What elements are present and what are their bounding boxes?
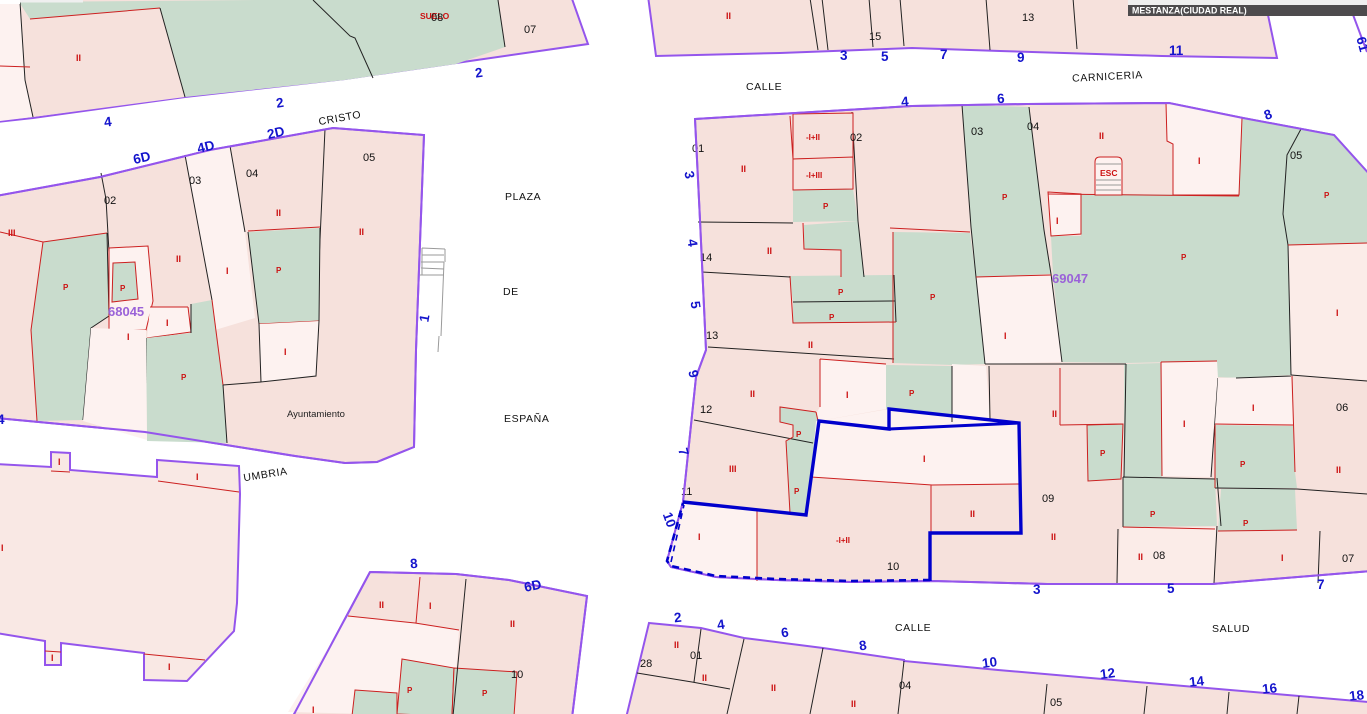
svg-text:3: 3: [1033, 582, 1041, 597]
svg-text:03: 03: [189, 175, 201, 187]
svg-text:II: II: [808, 340, 813, 350]
svg-text:P: P: [1150, 510, 1156, 519]
svg-text:P: P: [909, 389, 915, 398]
svg-text:Ayuntamiento: Ayuntamiento: [287, 409, 345, 420]
svg-text:I: I: [168, 662, 171, 672]
svg-text:05: 05: [363, 152, 375, 164]
svg-text:P: P: [794, 487, 800, 496]
svg-text:P: P: [120, 284, 126, 293]
svg-text:01: 01: [690, 650, 702, 662]
svg-text:P: P: [1002, 193, 1008, 202]
svg-text:I: I: [166, 318, 169, 328]
svg-text:06: 06: [1336, 402, 1348, 414]
svg-text:03: 03: [971, 126, 983, 138]
svg-text:28: 28: [640, 658, 652, 670]
svg-text:P: P: [930, 293, 936, 302]
svg-text:10: 10: [887, 561, 899, 573]
svg-text:I: I: [1252, 403, 1255, 413]
svg-text:II: II: [1336, 465, 1341, 475]
svg-text:II: II: [741, 164, 746, 174]
svg-text:4: 4: [0, 412, 5, 427]
svg-text:3: 3: [840, 48, 848, 63]
svg-text:16: 16: [1261, 680, 1278, 697]
svg-text:P: P: [63, 283, 69, 292]
svg-text:69047: 69047: [1052, 271, 1088, 286]
svg-text:III: III: [729, 464, 737, 474]
svg-text:14: 14: [1188, 673, 1205, 690]
svg-text:II: II: [970, 509, 975, 519]
svg-text:II: II: [674, 640, 679, 650]
svg-text:II: II: [1052, 409, 1057, 419]
svg-text:ESC: ESC: [1100, 168, 1117, 178]
svg-text:P: P: [181, 373, 187, 382]
svg-text:10: 10: [511, 669, 523, 681]
svg-text:II: II: [76, 53, 81, 63]
svg-text:08: 08: [1153, 550, 1165, 562]
svg-text:P: P: [482, 689, 488, 698]
svg-text:P: P: [1240, 460, 1246, 469]
svg-text:-I+II: -I+II: [836, 536, 850, 545]
svg-text:13: 13: [1022, 12, 1034, 24]
svg-text:02: 02: [850, 132, 862, 144]
svg-text:II: II: [1099, 131, 1104, 141]
svg-text:II: II: [851, 699, 856, 709]
svg-text:ESPAÑA: ESPAÑA: [504, 412, 549, 425]
svg-text:01: 01: [692, 143, 704, 155]
svg-text:I: I: [1056, 216, 1059, 226]
svg-text:11: 11: [1169, 43, 1184, 58]
svg-text:CALLE: CALLE: [746, 81, 782, 93]
svg-text:P: P: [1243, 519, 1249, 528]
svg-text:05: 05: [1290, 150, 1302, 162]
svg-text:5: 5: [881, 49, 889, 64]
svg-text:5: 5: [1167, 581, 1175, 596]
svg-text:12: 12: [700, 404, 712, 416]
svg-text:07: 07: [1342, 553, 1354, 565]
svg-text:I: I: [1281, 553, 1284, 563]
svg-text:-I+II: -I+II: [806, 133, 820, 142]
svg-text:II: II: [726, 11, 731, 21]
svg-text:I: I: [698, 532, 701, 542]
svg-text:P: P: [829, 313, 835, 322]
svg-text:P: P: [276, 266, 282, 275]
svg-text:I: I: [51, 653, 54, 663]
svg-text:12: 12: [1099, 665, 1116, 682]
svg-text:II: II: [1138, 552, 1143, 562]
svg-text:13: 13: [706, 330, 718, 342]
svg-text:7: 7: [940, 47, 948, 62]
svg-text:I: I: [1198, 156, 1201, 166]
svg-text:10: 10: [981, 654, 998, 671]
svg-text:I: I: [196, 472, 199, 482]
svg-text:04: 04: [246, 168, 258, 180]
svg-text:02: 02: [104, 195, 116, 207]
svg-text:I: I: [1004, 331, 1007, 341]
svg-text:P: P: [1100, 449, 1106, 458]
svg-text:15: 15: [869, 31, 881, 43]
svg-text:II: II: [771, 683, 776, 693]
svg-text:I: I: [312, 705, 315, 714]
svg-text:SALUD: SALUD: [1212, 623, 1250, 635]
svg-text:DE: DE: [503, 286, 519, 298]
svg-text:I: I: [284, 347, 287, 357]
svg-text:MESTANZA(CIUDAD REAL): MESTANZA(CIUDAD REAL): [1132, 6, 1247, 16]
svg-text:II: II: [1051, 532, 1056, 542]
svg-text:PLAZA: PLAZA: [505, 191, 541, 203]
svg-text:9: 9: [1017, 50, 1025, 65]
svg-text:09: 09: [1042, 493, 1054, 505]
svg-text:P: P: [407, 686, 413, 695]
svg-text:I: I: [846, 390, 849, 400]
svg-text:2: 2: [673, 610, 682, 626]
svg-text:I: I: [58, 457, 61, 467]
svg-text:I: I: [1183, 419, 1186, 429]
svg-text:08: 08: [431, 12, 443, 24]
svg-text:I: I: [127, 332, 130, 342]
svg-text:P: P: [823, 202, 829, 211]
svg-text:68045: 68045: [108, 304, 144, 319]
svg-text:05: 05: [1050, 697, 1062, 709]
svg-text:04: 04: [899, 680, 911, 692]
svg-text:II: II: [359, 227, 364, 237]
svg-text:I: I: [923, 454, 926, 464]
svg-text:I: I: [1, 543, 4, 553]
svg-text:P: P: [796, 430, 802, 439]
svg-text:II: II: [702, 673, 707, 683]
svg-text:II: II: [176, 254, 181, 264]
svg-text:II: II: [276, 208, 281, 218]
svg-text:P: P: [1324, 191, 1330, 200]
svg-text:07: 07: [524, 24, 536, 36]
svg-text:II: II: [510, 619, 515, 629]
svg-text:I: I: [1336, 308, 1339, 318]
svg-text:P: P: [1181, 253, 1187, 262]
svg-text:I: I: [226, 266, 229, 276]
svg-text:P: P: [838, 288, 844, 297]
svg-text:18: 18: [1348, 687, 1365, 704]
svg-text:CALLE: CALLE: [895, 622, 931, 634]
svg-text:III: III: [8, 228, 16, 238]
svg-text:II: II: [750, 389, 755, 399]
svg-text:7: 7: [1317, 577, 1325, 592]
svg-text:-I+III: -I+III: [806, 171, 822, 180]
svg-text:04: 04: [1027, 121, 1039, 133]
svg-text:I: I: [429, 601, 432, 611]
svg-text:II: II: [767, 246, 772, 256]
svg-text:II: II: [379, 600, 384, 610]
